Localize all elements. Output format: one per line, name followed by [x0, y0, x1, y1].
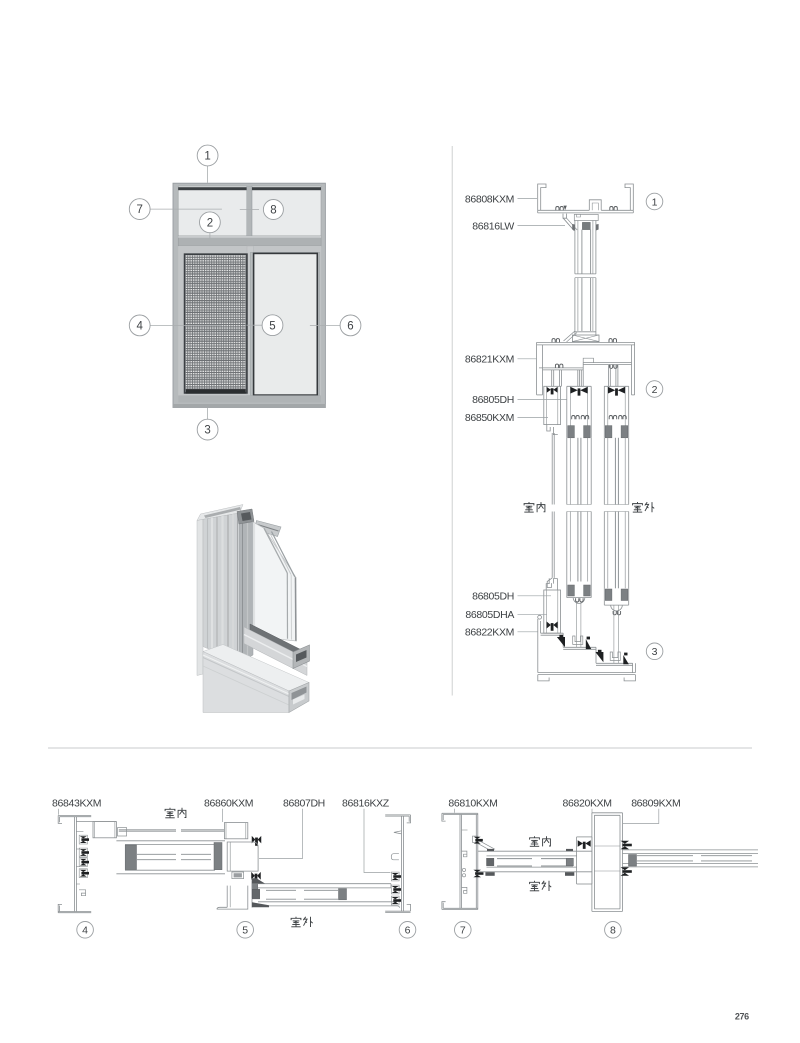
svg-text:86816KXZ: 86816KXZ	[342, 798, 390, 810]
svg-text:86810KXM: 86810KXM	[448, 798, 497, 810]
svg-text:6: 6	[347, 321, 353, 333]
svg-text:5: 5	[242, 925, 248, 937]
svg-text:3: 3	[652, 646, 658, 658]
svg-text:86807DH: 86807DH	[283, 798, 325, 810]
svg-text:5: 5	[269, 320, 275, 332]
svg-text:4: 4	[82, 925, 88, 937]
svg-text:8: 8	[270, 205, 276, 217]
svg-text:86808KXM: 86808KXM	[465, 193, 514, 205]
svg-text:86805DH: 86805DH	[472, 591, 514, 603]
svg-text:86820KXM: 86820KXM	[563, 798, 612, 810]
svg-text:86816LW: 86816LW	[472, 220, 514, 232]
svg-text:86805DH: 86805DH	[472, 394, 514, 406]
svg-text:3: 3	[204, 425, 210, 437]
svg-text:86843KXM: 86843KXM	[52, 798, 101, 810]
svg-text:276: 276	[735, 1011, 749, 1021]
svg-text:2: 2	[652, 384, 658, 396]
svg-text:4: 4	[136, 321, 143, 333]
svg-text:7: 7	[460, 925, 466, 937]
svg-text:86850KXM: 86850KXM	[465, 412, 514, 424]
svg-text:6: 6	[405, 925, 411, 937]
svg-text:1: 1	[204, 151, 210, 163]
svg-text:1: 1	[652, 196, 658, 208]
svg-text:86805DHA: 86805DHA	[465, 609, 514, 621]
svg-text:86809KXM: 86809KXM	[631, 798, 680, 810]
svg-text:86860KXM: 86860KXM	[204, 798, 253, 810]
svg-text:2: 2	[207, 217, 213, 229]
svg-text:86822KXM: 86822KXM	[465, 627, 514, 639]
svg-text:7: 7	[136, 204, 142, 216]
svg-text:8: 8	[610, 925, 616, 937]
svg-text:86821KXM: 86821KXM	[465, 354, 514, 366]
